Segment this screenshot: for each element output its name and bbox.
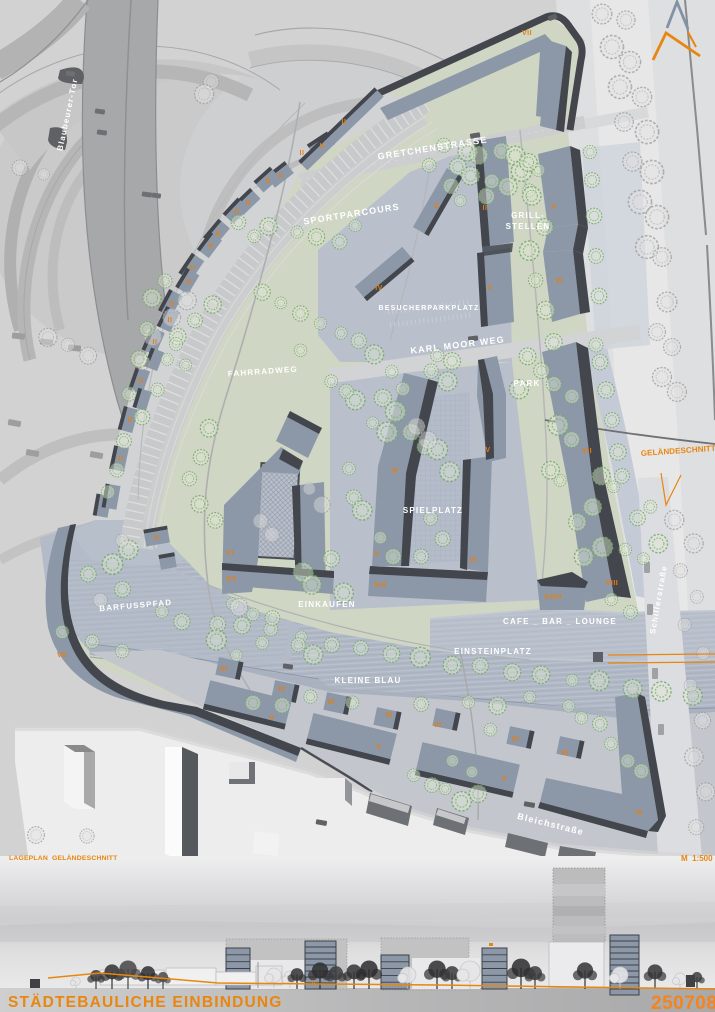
- svg-text:II: II: [153, 339, 158, 346]
- svg-text:LAGEPLAN: LAGEPLAN: [9, 855, 48, 862]
- svg-text:II: II: [139, 378, 144, 385]
- svg-text:II: II: [483, 205, 488, 212]
- svg-text:V: V: [376, 744, 381, 751]
- svg-text:II: II: [168, 317, 173, 324]
- svg-text:II: II: [266, 178, 271, 185]
- svg-text:GRILL-: GRILL-: [511, 211, 545, 220]
- svg-text:VIII: VIII: [374, 582, 387, 589]
- svg-text:V: V: [501, 776, 506, 783]
- svg-text:IV: IV: [391, 468, 399, 475]
- svg-text:VI: VI: [226, 550, 234, 557]
- svg-text:BESUCHERPARKPLATZ: BESUCHERPARKPLATZ: [378, 305, 479, 312]
- svg-text:III: III: [220, 666, 227, 673]
- svg-text:II: II: [128, 417, 133, 424]
- svg-text:V: V: [485, 447, 490, 454]
- svg-text:250708: 250708: [651, 993, 715, 1012]
- svg-text:IV: IV: [375, 285, 383, 292]
- svg-text:II: II: [342, 119, 347, 126]
- svg-text:GELÄNDESCHNITT: GELÄNDESCHNITT: [52, 854, 118, 862]
- svg-text:V: V: [551, 204, 556, 211]
- svg-text:II: II: [279, 173, 284, 180]
- svg-text:II: II: [300, 150, 305, 157]
- svg-text:M 1:500: M 1:500: [681, 854, 713, 863]
- svg-text:II: II: [155, 535, 160, 542]
- svg-text:VI: VI: [555, 278, 563, 285]
- svg-text:VII: VII: [57, 652, 67, 659]
- svg-text:II: II: [191, 265, 196, 272]
- svg-text:VIII: VIII: [606, 580, 619, 587]
- svg-text:III: III: [327, 699, 334, 706]
- svg-text:KLEINE BLAU: KLEINE BLAU: [335, 676, 402, 685]
- svg-text:PARK: PARK: [514, 379, 541, 388]
- svg-text:II: II: [119, 456, 124, 463]
- svg-text:CAFE _ BAR _ LOUNGE: CAFE _ BAR _ LOUNGE: [503, 617, 617, 626]
- svg-text:II: II: [320, 143, 325, 150]
- svg-text:III: III: [561, 750, 568, 757]
- svg-text:III: III: [434, 722, 441, 729]
- svg-text:VII: VII: [226, 576, 236, 583]
- svg-text:V: V: [269, 715, 274, 722]
- svg-text:III: III: [512, 736, 519, 743]
- svg-text:III: III: [385, 712, 392, 719]
- svg-text:EINSTEINPLATZ: EINSTEINPLATZ: [454, 647, 532, 656]
- svg-text:EINKAUFEN: EINKAUFEN: [298, 600, 355, 609]
- svg-text:II: II: [170, 301, 175, 308]
- svg-text:STÄDTEBAULICHE EINBINDUNG: STÄDTEBAULICHE EINBINDUNG: [8, 994, 283, 1011]
- svg-text:VI: VI: [635, 810, 643, 817]
- svg-text:II: II: [235, 209, 240, 216]
- svg-text:II: II: [216, 231, 221, 238]
- svg-text:STELLEN: STELLEN: [506, 222, 551, 231]
- svg-text:V: V: [374, 551, 379, 558]
- svg-text:XVIII: XVIII: [544, 594, 562, 601]
- svg-text:III: III: [278, 686, 285, 693]
- svg-text:X: X: [434, 203, 439, 210]
- svg-text:II: II: [187, 279, 192, 286]
- svg-text:II: II: [209, 243, 214, 250]
- svg-text:V: V: [487, 285, 492, 292]
- svg-text:VII: VII: [582, 448, 592, 455]
- svg-text:II: II: [246, 200, 251, 207]
- svg-text:VI: VI: [469, 557, 477, 564]
- svg-text:VII: VII: [522, 30, 532, 37]
- svg-text:SPIELPLATZ: SPIELPLATZ: [403, 506, 463, 515]
